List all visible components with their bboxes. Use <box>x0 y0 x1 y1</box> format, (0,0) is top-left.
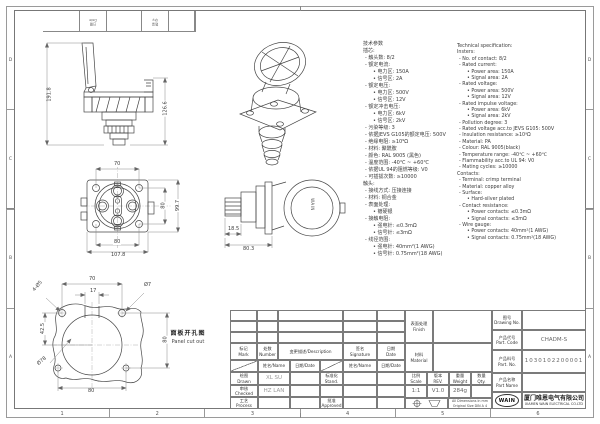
approved-date-cell <box>377 397 405 409</box>
company-name-cell: 厦门唯恩电气有限公司 XIAMEN WAIN ELECTRICAL CO.LTD <box>522 392 586 409</box>
projection-symbol-cell <box>405 398 448 409</box>
checked-name-value: HZ LAN <box>258 385 290 397</box>
dim-cutout-slot-width: 17 <box>89 289 97 294</box>
label-cutout-small-hole: Ø7 <box>143 283 152 288</box>
part-no-value: 1030102200001 <box>522 350 586 373</box>
spec-line-zh: • 信号区: 2A <box>363 76 458 83</box>
grid-reference-letters-left: DCBA <box>7 11 14 407</box>
drawing-no-label: 图号 Drawing No. <box>492 310 522 330</box>
spec-line-zh: - 线径范围: <box>363 237 458 244</box>
rev-empty-cell <box>278 321 343 332</box>
part-no-label: 产品料号 Part. No. <box>492 350 522 373</box>
dim-cutout-top-spacing: 70 <box>88 277 96 282</box>
dim-side-body-height: 126.6 <box>164 100 169 116</box>
material-value-cell <box>433 343 492 372</box>
dim-front-flange-height: 99.7 <box>176 199 181 212</box>
grid-letter: D <box>586 11 593 109</box>
spec-line-zh: - 材料: 铜合金 <box>363 195 458 202</box>
rev-label: 版本 REV. <box>427 372 449 385</box>
dimensions-note: All Dimensions in mm Original Size DIN A… <box>448 398 492 409</box>
drawing-sheet: 123456 DCBA DCBA 日期 Date 数量 Qty. <box>0 0 600 424</box>
side-view-drawing <box>40 40 180 152</box>
isometric-view-drawing <box>228 38 338 168</box>
rev-empty-cell <box>278 310 343 321</box>
spec-line-zh: - 温度范围: -40℃ ~ +60℃ <box>363 160 458 167</box>
dim-rear-pin-depth: 18.5 <box>227 227 240 232</box>
spec-line-zh: - 触头数: 8/2 <box>363 55 458 62</box>
dim-cutout-bottom-spacing: 80 <box>87 389 95 394</box>
centering-mark-top <box>300 6 301 11</box>
spec-line-zh: - 依据JEVS G105的额定电压: 500V <box>363 132 458 139</box>
dim-side-total-height: 191.8 <box>48 86 53 102</box>
dim-front-bottom-spacing: 80 <box>113 240 121 245</box>
dim-rear-total-depth: 80.3 <box>242 247 255 252</box>
panel-cutout-title-en: Panel cut out <box>156 339 220 345</box>
part-code-value: CHADM-S <box>522 330 586 350</box>
rev-empty-cell <box>377 310 405 321</box>
stand-name-cell <box>343 372 377 385</box>
spec-column-english: Technical specification:Insters:- No. of… <box>457 44 581 242</box>
corner-cell-label: 日期 Date <box>80 11 107 31</box>
rev-empty-cell <box>377 332 405 343</box>
dim-front-flange-width: 107.8 <box>110 253 126 258</box>
process-name-cell <box>258 397 290 409</box>
rev-empty-cell <box>377 321 405 332</box>
stand-date-cell <box>377 372 405 385</box>
corner-cell <box>43 11 80 31</box>
sub-header-name-right: 姓名/Name <box>343 360 377 372</box>
corner-cell <box>107 11 142 31</box>
cover-logo-text: WAIN <box>310 198 315 211</box>
spec-line-zh: • 强电针: ≤0.3mΩ <box>363 223 458 230</box>
process-date-cell <box>290 397 320 409</box>
process-label: 工艺 Process <box>230 397 258 409</box>
spec-line-zh: • 信号区: 2kV <box>363 118 458 125</box>
spec-line-zh: 触头: <box>363 181 458 188</box>
rev-empty-cell <box>257 321 278 332</box>
rev-empty-cell <box>230 310 257 321</box>
spec-line-zh: - 额定电压: <box>363 83 458 90</box>
centering-mark-right <box>585 208 594 209</box>
panel-cutout-title-zh: 面板开孔图 <box>160 328 216 337</box>
spec-line-zh: • 电力区: 150A <box>363 69 458 76</box>
spec-line-zh: • 信号针: ≤3mΩ <box>363 230 458 237</box>
rev-empty-cell <box>257 310 278 321</box>
grid-number: 6 <box>490 409 585 418</box>
empty-cell <box>343 385 377 397</box>
spec-line-zh: - 表面处理: <box>363 202 458 209</box>
grid-number: 3 <box>204 409 299 418</box>
corner-cell-label: 数量 Qty. <box>142 11 169 31</box>
rev-header-date: 日期 Date <box>377 343 405 360</box>
scale-label: 比例 Scale <box>405 372 427 385</box>
dim-front-top-spacing: 70 <box>113 162 121 167</box>
part-name-value-cell <box>522 373 586 392</box>
grid-letter: B <box>7 209 14 308</box>
grid-number: 1 <box>15 409 109 418</box>
spec-line-zh: - 材料: 聚酰胺 <box>363 146 458 153</box>
grid-number: 5 <box>395 409 490 418</box>
rev-empty-cell <box>343 321 377 332</box>
spec-line-zh: - 颜色: RAL 9005 (黑色) <box>363 153 458 160</box>
grid-letter: A <box>7 308 14 407</box>
spec-line-zh: 技术参数 <box>363 41 458 48</box>
grid-letter: D <box>7 11 14 109</box>
spec-line-zh: • 信号针: 0.75mm²(18 AWG) <box>363 251 458 258</box>
spec-line-zh: • 镀硬银 <box>363 209 458 216</box>
drawing-no-value-cell <box>522 310 586 330</box>
spec-line-zh: - 依据UL 94的阻燃等级: V0 <box>363 167 458 174</box>
title-block: 标记 Mark 处数 Number 变更描述/Description 签名 Si… <box>230 310 586 409</box>
material-label: 材料 Material <box>405 343 433 372</box>
spec-line-en: • Signal contacts: 0.75mm²(18 AWG) <box>457 236 581 242</box>
spec-line-zh: - 污染等级: 3 <box>363 125 458 132</box>
grid-letter: C <box>586 109 593 208</box>
grid-letter: B <box>586 209 593 308</box>
spec-line-zh: • 电力区: 6kV <box>363 111 458 118</box>
rev-empty-cell <box>257 332 278 343</box>
checked-date-cell <box>290 385 320 397</box>
rev-header-description: 变更描述/Description <box>278 343 343 360</box>
qty-label: 数量 Qty. <box>471 372 492 385</box>
rev-header-mark: 标记 Mark <box>230 343 257 360</box>
corner-reference-block: 日期 Date 数量 Qty. <box>43 11 196 32</box>
rev-header-number: 处数 Number <box>257 343 278 360</box>
centering-mark-bottom <box>300 413 301 418</box>
drawn-date-cell <box>290 372 320 385</box>
drawn-name-value: XL SU <box>258 372 290 385</box>
approved-name-cell <box>343 397 377 409</box>
qty-value-cell <box>471 385 492 398</box>
sub-header-date-left: 日期/Date <box>290 360 320 372</box>
rev-empty-cell <box>230 321 257 332</box>
part-code-label: 产品代号 Part. Code <box>492 330 522 350</box>
front-view-drawing <box>80 158 190 266</box>
scale-value: 1:1 <box>405 385 427 398</box>
finish-value-cell <box>433 310 492 343</box>
rev-value: V1.0 <box>427 385 449 398</box>
empty-cell <box>377 385 405 397</box>
rev-header-signature: 签名 Signature <box>343 343 377 360</box>
rev-empty-cell <box>343 310 377 321</box>
spec-line-zh: • 信号区: 12V <box>363 97 458 104</box>
spec-line-zh: 插芯: <box>363 48 458 55</box>
approved-label: 批准 Approved <box>320 397 343 409</box>
panel-cutout-drawing <box>20 268 220 408</box>
grid-number: 2 <box>109 409 204 418</box>
weight-label: 重量 Weight <box>449 372 471 385</box>
standardization-label: 标准化 Stand. <box>320 372 343 385</box>
rev-empty-cell <box>343 332 377 343</box>
spec-line-zh: - 额定冲击电压: <box>363 104 458 111</box>
dim-cutout-center-offset: 42.5 <box>41 322 46 335</box>
spec-column-chinese: 技术参数插芯:- 触头数: 8/2- 额定电流:• 电力区: 150A• 信号区… <box>363 41 458 258</box>
spec-line-zh: • 电力区: 500V <box>363 90 458 97</box>
company-name-en: XIAMEN WAIN ELECTRICAL CO.LTD <box>525 402 583 406</box>
spec-line-zh: • 强电针: 40mm²(1 AWG) <box>363 244 458 251</box>
spec-line-zh: - 可插拔次数: ≥10000 <box>363 174 458 181</box>
checked-label: 审核 Checked <box>230 385 258 397</box>
rev-empty-cell <box>278 332 343 343</box>
centering-mark-left <box>6 208 15 209</box>
grid-letter: A <box>586 308 593 407</box>
spec-line-zh: - 接线方式: 压接连接 <box>363 188 458 195</box>
spec-line-zh: - 绝缘电阻: ≥10⁹Ω <box>363 139 458 146</box>
finish-label: 表面处理 Finish <box>405 310 433 343</box>
grid-reference-letters-right: DCBA <box>586 11 593 407</box>
rev-empty-cell <box>230 332 257 343</box>
empty-cell <box>320 385 343 397</box>
sub-header-name-left: 姓名/Name <box>258 360 290 372</box>
rear-view-drawing <box>222 176 347 264</box>
grid-number: 4 <box>300 409 395 418</box>
drawn-label: 绘图 Drawn <box>230 372 258 385</box>
first-angle-projection-icon <box>409 399 445 408</box>
spec-line-zh: - 额定电流: <box>363 62 458 69</box>
dimensions-note-line2: Original Size DIN A 4 <box>453 404 487 408</box>
company-name-zh: 厦门唯恩电气有限公司 <box>524 395 584 402</box>
spec-line-zh: - 接触电阻: <box>363 216 458 223</box>
grid-letter: C <box>7 109 14 208</box>
weight-value: 284g <box>449 385 471 398</box>
dim-front-right-spacing: 80 <box>162 201 167 209</box>
part-name-label: 产品名称 Part Name <box>492 373 522 392</box>
diagonal-cell <box>230 360 258 372</box>
sub-header-date-right: 日期/Date <box>377 360 405 372</box>
diagonal-cell <box>320 360 343 372</box>
company-logo: WAIN <box>495 394 519 407</box>
corner-cell <box>169 11 195 31</box>
company-logo-text: WAIN <box>499 398 515 404</box>
company-logo-cell: WAIN <box>492 392 522 409</box>
